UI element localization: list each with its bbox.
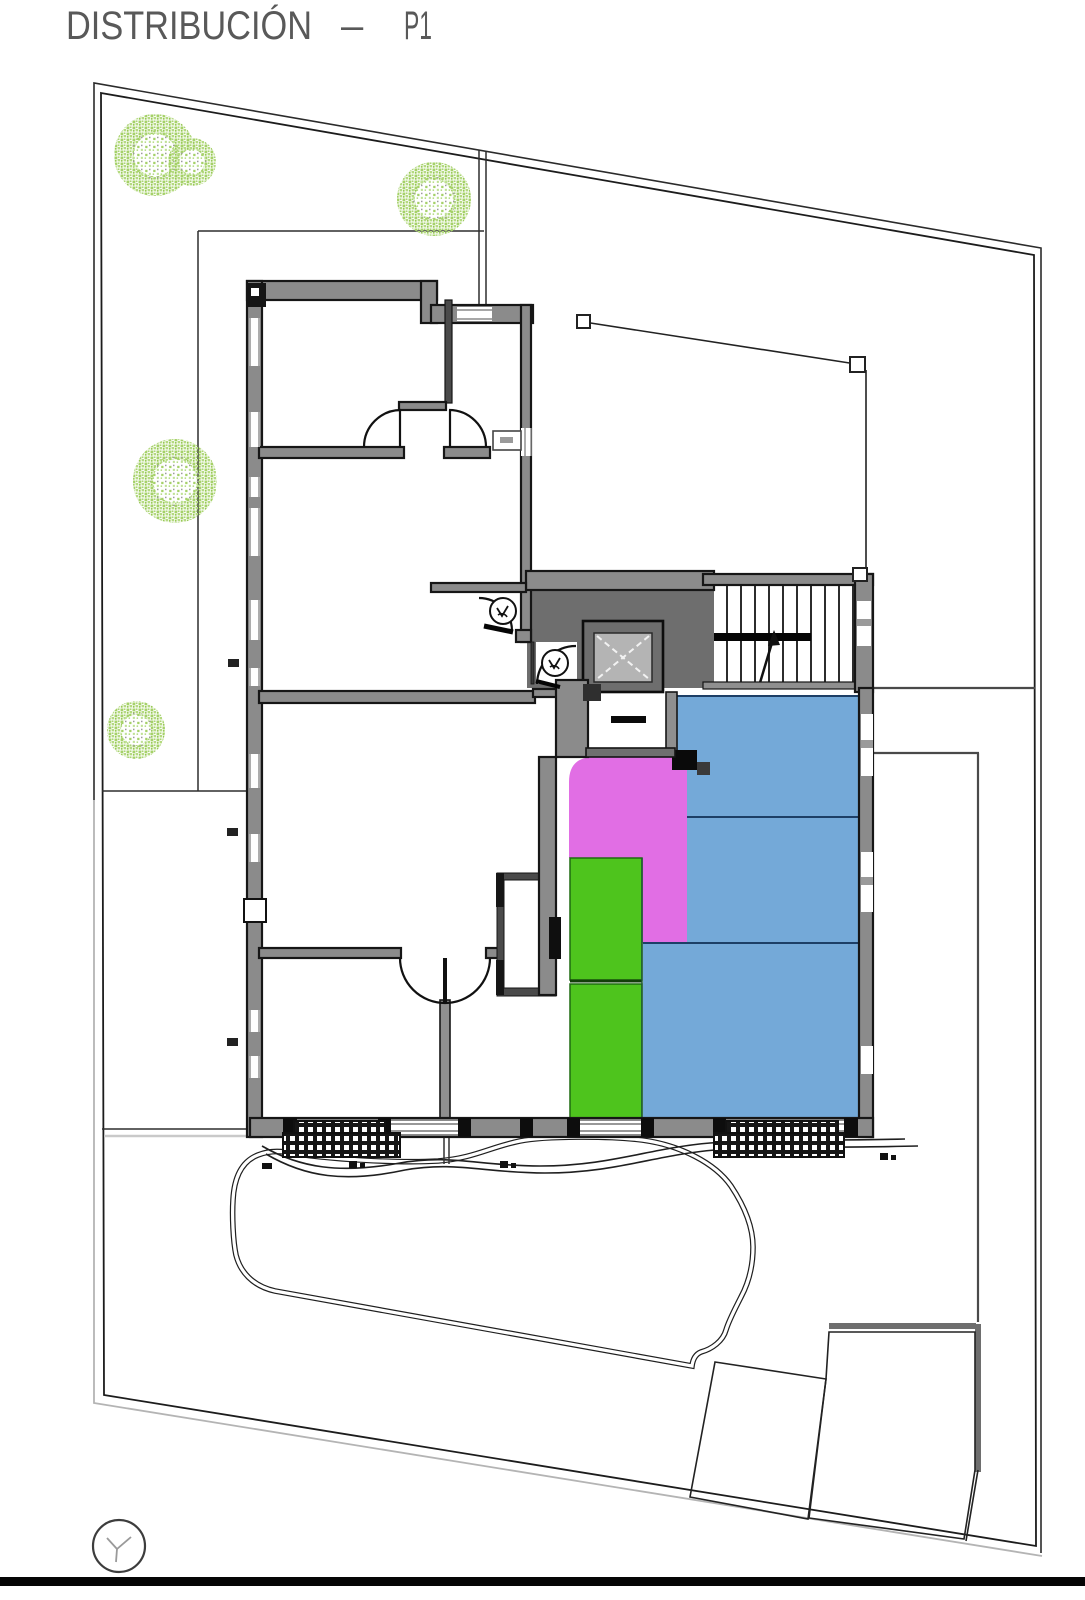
- svg-text:P1: P1: [404, 4, 432, 48]
- svg-text:DISTRIBUCIÓN: DISTRIBUCIÓN: [66, 3, 312, 48]
- svg-text:–: –: [341, 4, 364, 48]
